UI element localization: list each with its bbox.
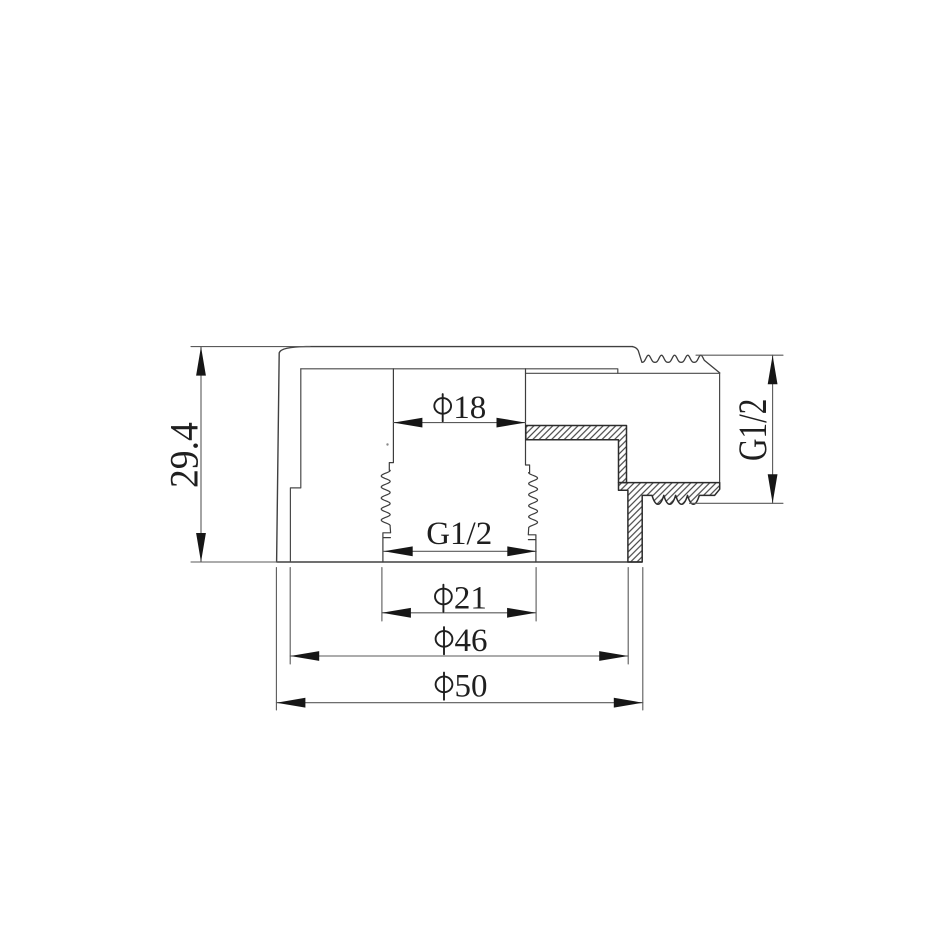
svg-text:21: 21: [454, 581, 487, 617]
svg-text:G1/2: G1/2: [730, 399, 775, 461]
svg-text:29.4: 29.4: [162, 422, 206, 488]
svg-text:50: 50: [455, 669, 488, 705]
svg-text:G1/2: G1/2: [426, 516, 492, 552]
svg-text:18: 18: [453, 390, 486, 426]
svg-text:46: 46: [455, 623, 488, 659]
